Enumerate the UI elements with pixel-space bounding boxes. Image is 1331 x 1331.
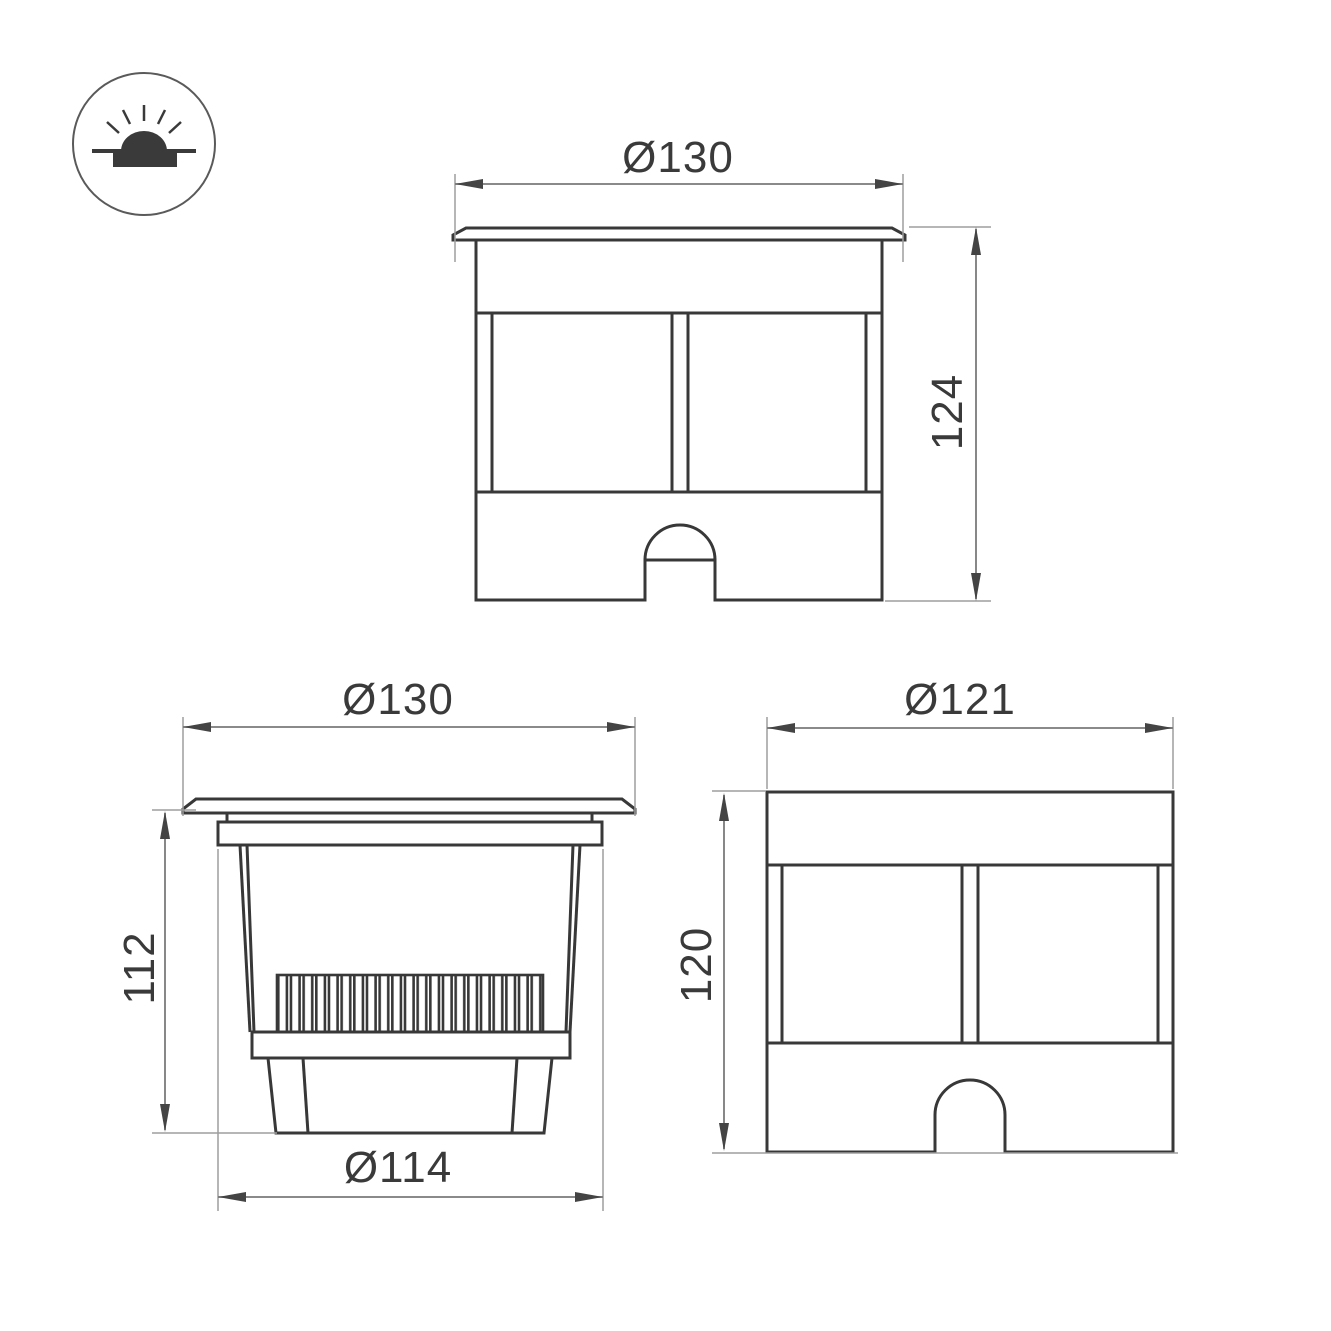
side-view [767,792,1173,1152]
icon-lamp-dome [121,131,167,151]
section-mounting-ring [218,822,602,845]
front-flange [453,228,905,240]
icon-light-rays [107,105,181,133]
dim-label-front-height: 124 [926,374,970,450]
front-view [453,228,905,600]
section-view [183,799,635,1133]
section-base-right-line [512,1058,517,1133]
icon-recessed-body [113,151,177,167]
dim-label-section-diameter: Ø130 [342,678,454,722]
recessed-ground-light-icon [73,73,215,215]
dim-label-side-height: 120 [675,927,719,1003]
section-plate [252,1032,570,1058]
dim-label-side-diameter: Ø121 [904,678,1016,722]
side-body [767,792,1173,1152]
front-body [476,240,882,600]
dim-label-section-body-diameter: Ø114 [344,1146,452,1190]
section-base [268,1058,552,1133]
section-flange [183,799,635,813]
dim-label-section-height: 112 [118,931,162,1004]
technical-drawing-canvas: Ø130 124 Ø130 112 Ø114 Ø121 120 [0,0,1331,1331]
section-base-left-line [303,1058,308,1133]
drawing-linework [0,0,1331,1331]
dim-label-front-diameter: Ø130 [622,136,734,180]
section-heatsink-fins [277,975,543,1032]
front-cable-arch [645,525,715,560]
